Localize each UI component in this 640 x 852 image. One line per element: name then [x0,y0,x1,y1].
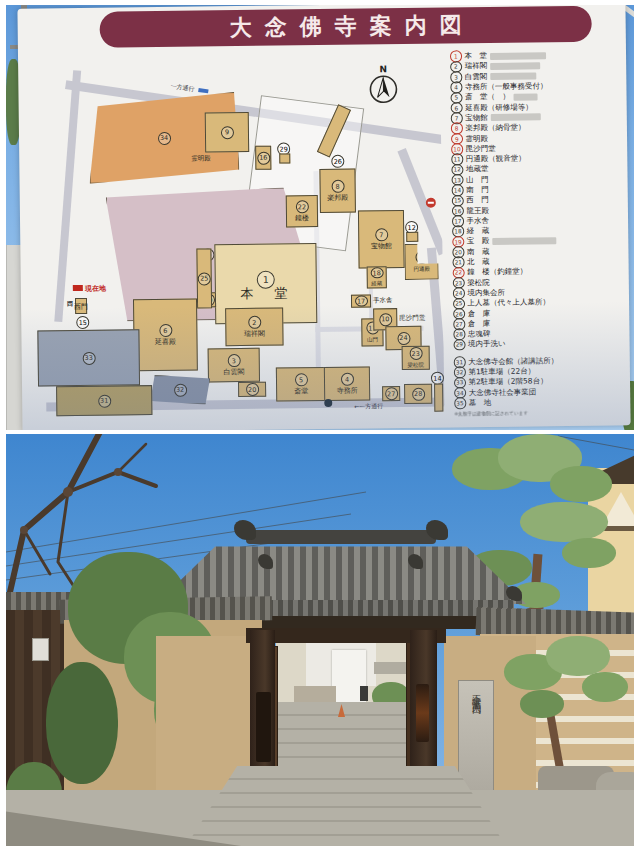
compass-icon [368,74,398,104]
building-label: 延喜殿 [155,338,176,346]
road-sign-dot [324,399,332,407]
building-number: 7 [375,228,388,241]
building-number: 5 [294,373,307,386]
legend-label: 境内集会所 [467,288,505,298]
redaction-patch [490,52,546,60]
legend-label: 境内手洗い [468,339,506,349]
building-label: 円通殿 [413,265,430,273]
building-number: 28 [412,387,425,400]
map-building-33: 33 [37,329,140,386]
building-number: 6 [159,324,172,337]
building-label: 山門 [367,335,378,343]
screenshot: 大念佛寺案内図 3435霊明殿916292622鐘楼8楽邦殿7宝物館18経蔵12… [0,0,640,852]
building-label: 毘沙門堂 [399,314,425,323]
temple-map: 3435霊明殿916292622鐘楼8楽邦殿7宝物館18経蔵1211円通殿1本 … [28,52,444,423]
legend-label: 経 蔵 [467,226,490,236]
redaction-patch [491,114,541,122]
legend-label: 上人墓（代々上人墓所） [468,298,551,309]
redaction-patch [490,62,540,70]
legend-label: 山 門 [466,175,489,185]
shrub [46,662,118,784]
legend-label: 白雲閣 [465,72,488,82]
building-label: 手水舎 [373,296,393,305]
map-building-17: 17 [351,294,371,307]
legend-label: 南 蔵 [467,247,490,257]
road [397,148,444,255]
legend-label: 延喜殿（研修場等） [465,102,533,113]
stone-path [186,766,506,846]
small-notice-plaque [32,638,49,661]
legend-label: 北 蔵 [467,257,490,267]
building-label: 本 堂 [240,289,291,298]
legend-label: 大念佛寺会館（諸講詰所） [468,356,558,367]
legend-item: 35墓 地 [454,396,626,408]
legend-label: 倉 庫 [468,309,491,319]
stone-pillar-inscription: 不許葷酒入山門 [470,687,483,701]
map-legend: 1本 堂2瑞祥閣3白雲閣4寺務所（一般事務受付）5斎 堂（ ）6延喜殿（研修場等… [450,49,627,421]
map-building-29 [279,153,290,163]
you-are-here-marker-icon [73,285,83,291]
legend-label: 毘沙門堂 [466,144,496,154]
legend-label: 手水舎 [467,216,490,226]
building-label: 経蔵 [371,279,382,287]
pine-foliage [562,538,616,568]
no-entry-sign-icon [426,198,436,208]
building-label: 斎堂 [294,387,308,395]
map-building-14 [434,384,443,412]
building-number: 31 [98,394,111,407]
building-label: 楽邦殿 [327,194,348,202]
legend-label: 墓 地 [469,398,492,408]
map-building-22: 22鐘楼 [286,195,318,227]
building-number: 24 [397,331,410,344]
building-number: 15 [76,316,89,329]
legend-number: 29 [454,339,466,351]
sign-title: 大念佛寺案内図 [230,10,475,43]
building-label: 鐘楼 [295,214,309,222]
building-number: 17 [354,295,367,306]
building-number: 4 [340,373,353,386]
legend-label: 梁松院 [467,278,490,288]
roof-ornament-icon [506,586,522,601]
building-number: 34 [157,131,170,144]
compass: N [366,64,401,108]
temple-name-plaque [256,692,271,762]
building-label: 西門 [74,302,88,310]
building-number: 9 [220,126,233,139]
one-way-arrow-icon [198,88,208,93]
map-building-3: 3白雲閣 [208,348,260,383]
legend-label: 第2駐車場（2階58台） [468,377,547,388]
building-number: 32 [174,383,187,396]
building-label: 瑞祥閣 [244,330,265,338]
one-way-label-bottom: ←一方通行 [354,402,383,411]
building-number: 3 [227,354,240,367]
you-are-here-label: 現在地 [73,284,106,294]
bonsai-foliage [520,690,564,718]
building-number: 25 [198,272,211,285]
legend-label: 第1駐車場（22台） [468,366,535,377]
map-building-9: 9 [205,112,249,153]
building-number: 20 [246,383,259,396]
building-label: 梁松院 [408,361,425,369]
building-number: 2 [248,316,261,329]
legend-label: 霊明殿 [465,134,488,144]
building-number: 18 [370,267,383,278]
redaction-patch [490,73,536,81]
legend-number: 35 [454,397,466,409]
building-number: 11 [415,251,428,264]
pine-foliage [550,466,612,502]
building-number: 22 [295,200,308,213]
legend-label: 忠魂碑 [468,329,491,339]
building-number: 33 [82,351,95,364]
redaction-patch [492,237,556,245]
building-label: 霊明殿 [191,154,211,163]
roof-ornament-icon [408,554,423,569]
map-building-27: 27 [382,386,400,401]
roof-ornament-icon [258,554,273,569]
legend-label: 瑞祥閣 [465,61,488,71]
map-building-2: 2瑞祥閣 [225,308,283,347]
legend-label: 鐘 楼（釣鐘堂） [467,267,527,278]
legend-item: 29境内手洗い [454,338,626,350]
inner-stone-wall [294,686,336,702]
map-building-7: 7宝物館 [358,210,405,269]
building-number: 10 [379,313,392,326]
map-buildings: 3435霊明殿916292622鐘楼8楽邦殿7宝物館18経蔵1211円通殿1本 … [28,52,440,57]
map-building-5: 5斎堂 [276,367,326,402]
legend-label: 斎 堂（ ） [465,92,510,103]
sign-title-banner: 大念佛寺案内図 [99,6,591,48]
redaction-patch [513,93,537,100]
gate-notice-plaque [416,684,429,742]
legend-label: 倉 庫 [468,319,491,329]
map-building-23: 23梁松院 [402,346,430,370]
map-building-28: 28 [404,384,432,404]
legend-label: 龍王殿 [466,206,489,216]
legend-label: 西 門 [466,195,489,205]
building-label: 寺務所 [337,387,358,395]
map-building-12 [406,232,418,242]
bonsai-foliage [582,672,628,702]
legend-label: 大念佛寺社会事業団 [469,387,537,398]
map-building-18: 18経蔵 [367,266,387,288]
legend-label: 南 門 [466,185,489,195]
signboard-photo: 大念佛寺案内図 3435霊明殿916292622鐘楼8楽邦殿7宝物館18経蔵12… [6,5,634,430]
map-building-4: 4寺務所 [324,366,370,401]
building-number: 16 [257,151,270,164]
map-building-31: 31 [56,385,152,416]
building-number: 8 [331,180,344,193]
gate-roof-ridge [246,530,436,544]
legend-fine-print: ※丸数字は建物別に記されています [454,409,626,416]
compass-n-label: N [366,64,400,74]
map-building-16: 16 [255,146,271,170]
building-number: 26 [331,155,344,168]
building-label: 宝物館 [371,242,392,250]
map-building-6: 6延喜殿 [133,299,198,372]
bonsai-foliage [546,636,610,676]
one-way-label-top: 一方通行 [170,82,209,96]
map-building-15: 西門 [75,298,87,314]
legend-label: 寺務所（一般事務受付） [465,81,548,92]
map-building-8: 8楽邦殿 [319,169,356,213]
legend-label: 本 堂 [464,51,487,61]
pine-foliage [520,502,608,542]
building-number: 23 [409,347,422,360]
scooter-silhouette [360,686,368,701]
temple-gate-photo: 不許葷酒入山門 [6,434,634,846]
legend-label: 宝物館 [465,113,488,123]
building-label: 白雲閣 [223,368,244,376]
covered-walkway [374,662,410,674]
legend-label: 円通殿（観音堂） [466,154,526,165]
building-number: 27 [385,387,398,400]
map-building-20: 20 [238,382,266,397]
map-building-32: 32 [150,374,210,405]
legend-label: 楽邦殿（納骨堂） [465,123,525,134]
legend-label: 地蔵堂 [466,164,489,174]
legend-label: 宝 殿 [467,236,490,246]
temple-map-sign: 大念佛寺案内図 3435霊明殿916292622鐘楼8楽邦殿7宝物館18経蔵12… [17,5,630,430]
map-building-25: 25 [196,248,212,308]
